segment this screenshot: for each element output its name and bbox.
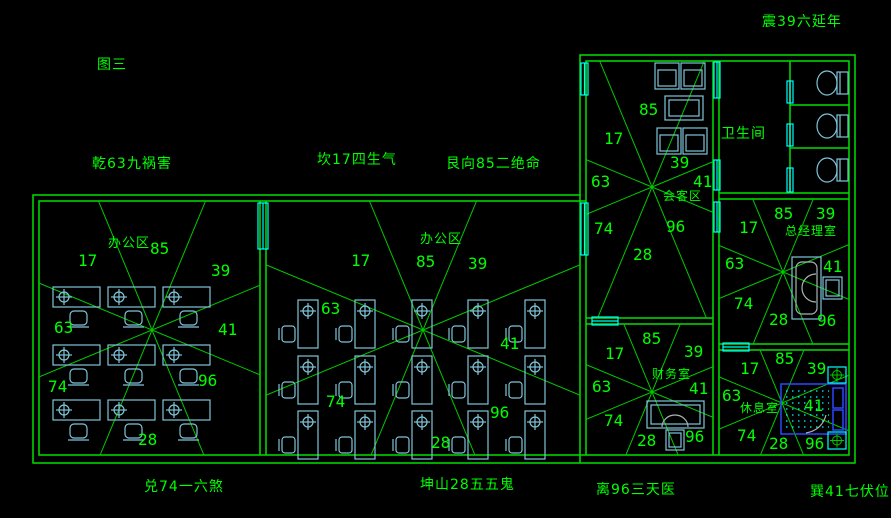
chair [452,382,465,398]
chair [70,369,87,383]
label-qian-northwest: 乾63九祸害 [92,157,172,171]
figure-label: 图三 [97,58,127,72]
rest-num-ne: 39 [807,361,826,377]
manager-num-se: 96 [817,313,836,329]
sector-line [228,173,782,403]
reception-num-w: 63 [591,174,610,190]
finance-num-s: 28 [637,433,656,449]
reception-num-e: 41 [693,174,712,190]
reception-num-se: 96 [666,219,685,235]
finance-num-ne: 39 [684,344,703,360]
chair-seat [669,433,681,447]
reception-num-n: 85 [639,102,658,118]
office-mid-num-sw: 74 [326,394,345,410]
chair [452,326,465,342]
office-left-num-s: 28 [138,432,157,448]
label-kan-north: 坎17四生气 [317,153,397,167]
toilet-bowl [817,71,837,95]
rest-num-nw: 17 [740,361,759,377]
manager-num-ne: 39 [816,206,835,222]
chair [339,326,352,342]
sector-line [782,403,891,518]
room-label-office-left: 办公区 [108,237,150,250]
rest-num-e: 41 [804,398,823,414]
chair [396,326,409,342]
office-mid-num-e: 41 [500,336,519,352]
finance-num-se: 96 [685,429,704,445]
chair [509,382,522,398]
pillow [833,410,843,430]
office-left-num-n: 85 [150,241,169,257]
office-left-num-e: 41 [218,322,237,338]
chair [180,369,197,383]
manager-num-s: 28 [769,312,788,328]
label-dui-west: 兑74一六煞 [144,480,224,494]
manager-num-e: 41 [823,259,842,275]
manager-num-n: 85 [774,206,793,222]
finance-num-w: 63 [592,379,611,395]
office-mid-num-n: 85 [416,254,435,270]
office-mid-num-s: 28 [431,435,450,451]
finance-num-n: 85 [642,331,661,347]
sector-line [0,100,152,330]
finance-num-nw: 17 [605,346,624,362]
finance-num-sw: 74 [604,413,623,429]
chair [452,437,465,453]
office-left-num-ne: 39 [211,263,230,279]
toilet-tank [837,159,848,181]
armchair-seat [686,135,704,151]
room-label-rest: 休息室 [740,402,779,414]
toilet-tank [837,72,848,94]
label-zhen-east: 震39六延年 [762,15,842,29]
office-mid-num-w: 63 [321,301,340,317]
chair [70,424,87,438]
office-left-num-sw: 74 [48,379,67,395]
sector-line [783,272,891,518]
chair [125,369,142,383]
label-xun-southeast: 巽41七伏位 [810,485,890,499]
office-left-num-nw: 17 [78,253,97,269]
manager-num-w: 63 [725,256,744,272]
label-li-south: 离96三天医 [596,483,676,497]
rest-num-s: 28 [769,436,788,452]
chair [282,437,295,453]
sector-line [783,272,891,502]
room-label-reception: 会客区 [663,190,702,202]
office-left-num-se: 96 [198,373,217,389]
room-label-manager: 总经理室 [785,225,837,237]
rest-num-w: 63 [722,388,741,404]
chair [509,437,522,453]
office-mid-num-ne: 39 [468,256,487,272]
office-left-num-w: 63 [54,320,73,336]
armchair-seat [658,70,676,86]
chair [180,311,197,325]
room-label-bathroom: 卫生间 [721,127,766,141]
chair [125,311,142,325]
sector-line [422,0,652,392]
side-chair-seat [826,280,839,296]
toilet-bowl [817,114,837,138]
manager-desk-top [796,262,817,314]
manager-num-nw: 17 [739,220,758,236]
label-kun-southwest: 坤山28五五鬼 [420,478,515,492]
toilet-bowl [817,158,837,182]
reception-num-sw: 74 [594,221,613,237]
reception-num-ne: 39 [670,155,689,171]
rest-num-n: 85 [775,351,794,367]
chair [396,437,409,453]
office-mid-num-nw: 17 [351,253,370,269]
reception-num-s: 28 [633,247,652,263]
chair [282,326,295,342]
finance-num-e: 41 [689,381,708,397]
rest-num-sw: 74 [737,428,756,444]
floor-plan-canvas: 图三 震39六延年 乾63九祸害 坎17四生气 艮向85二绝命 兑74一六煞 坤… [0,0,891,518]
armchair-seat [660,135,678,151]
manager-num-sw: 74 [734,296,753,312]
label-gen-northeast: 艮向85二绝命 [446,157,541,171]
rest-num-se: 96 [805,436,824,452]
manager-chair-arc [802,274,816,302]
room-label-finance: 财务室 [652,368,691,380]
office-mid-num-se: 96 [490,405,509,421]
room-label-office-mid: 办公区 [420,233,462,246]
bed-cover-fold [806,415,826,433]
sector-line [782,403,891,518]
reception-num-nw: 17 [604,131,623,147]
toilet-tank [837,115,848,137]
coffee-table-top [669,100,699,116]
pillow [833,388,843,408]
chair [339,437,352,453]
